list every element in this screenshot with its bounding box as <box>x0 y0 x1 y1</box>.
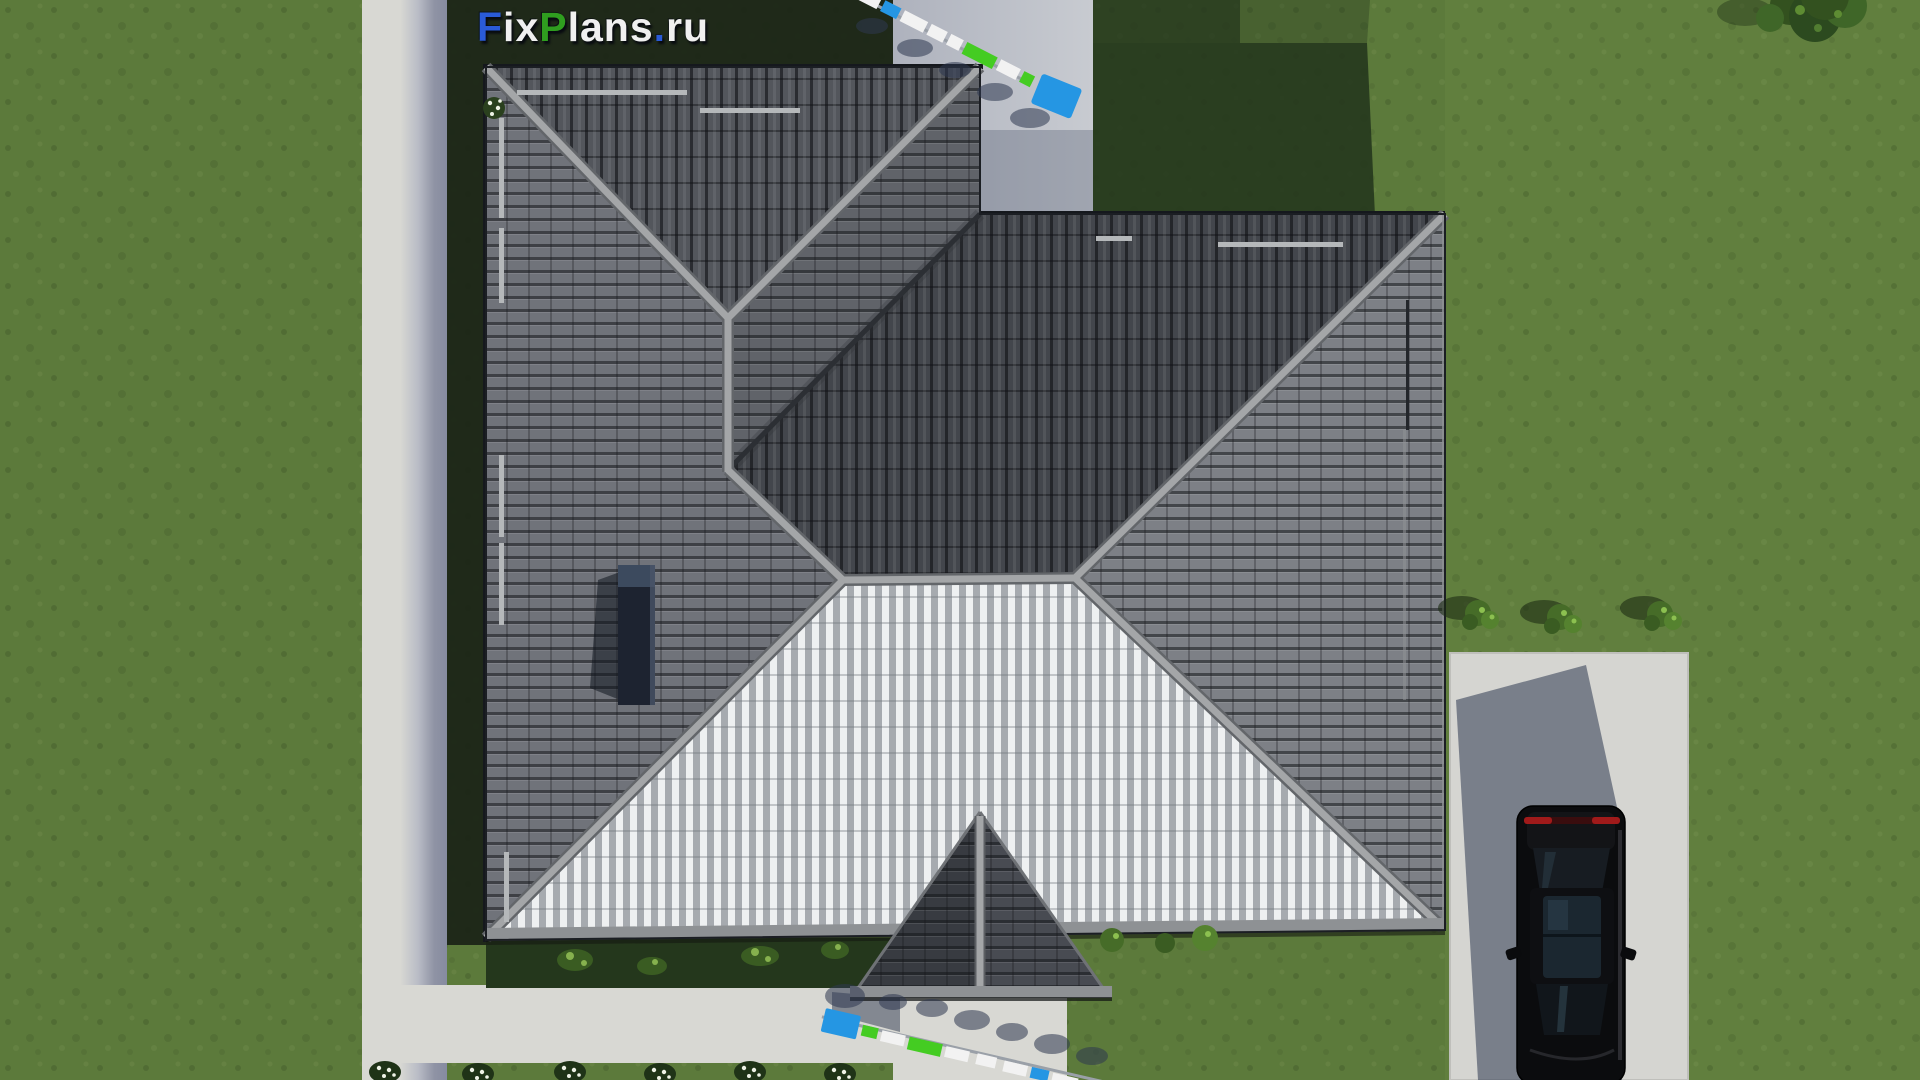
logo-part: lans <box>568 4 654 50</box>
render-scene <box>0 0 1920 1080</box>
roof-bar-east <box>1403 430 1406 700</box>
chimney-cap <box>618 565 655 587</box>
logo-part: . <box>654 4 666 50</box>
house-shadow-northeast-b <box>1240 0 1370 43</box>
chimney <box>590 565 655 705</box>
logo-part: F <box>477 4 503 50</box>
car-windshield <box>1536 984 1608 1035</box>
logo-part: P <box>539 4 567 50</box>
chimney-highlight <box>650 565 655 705</box>
house-shadow-northeast-a <box>1093 0 1240 43</box>
car-sun-edge <box>1618 830 1622 1060</box>
sunroof-reflection <box>1548 900 1568 930</box>
house-shadow-northeast-c <box>1093 43 1375 216</box>
ridge-main <box>843 578 1075 580</box>
corner-flower-bush <box>483 97 505 119</box>
path-west <box>362 0 447 1080</box>
logo-part: ru <box>666 4 709 50</box>
aerial-house-render: FixPlans.ru <box>0 0 1920 1080</box>
sunroof-divider <box>1543 934 1601 937</box>
tail-lights <box>1524 817 1620 824</box>
roof-seam-east <box>1406 300 1409 430</box>
watermark-logo: FixPlans.ru <box>477 4 709 51</box>
logo-part: ix <box>503 4 539 50</box>
